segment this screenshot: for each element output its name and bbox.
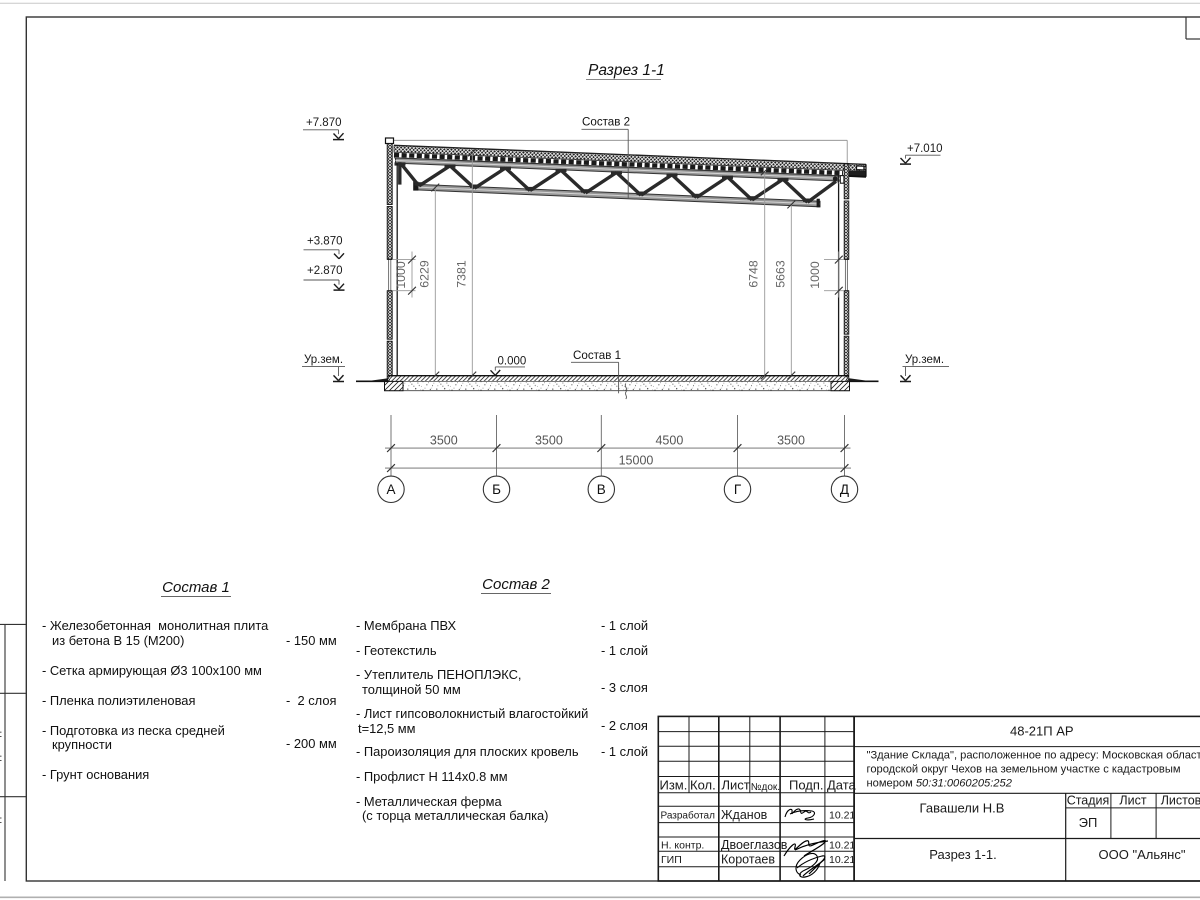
svg-text:Ур.зем.: Ур.зем. (304, 354, 343, 366)
svg-text:номером 50:31:0060205:252: номером 50:31:0060205:252 (867, 777, 1013, 789)
svg-text:1000: 1000 (808, 261, 822, 289)
svg-text:ООО "Альянс": ООО "Альянс" (1099, 847, 1186, 862)
svg-text:1000: 1000 (394, 261, 408, 289)
svg-text:Дата: Дата (827, 778, 857, 793)
svg-text:Лист: Лист (1119, 794, 1146, 808)
svg-text:6748: 6748 (747, 260, 761, 288)
svg-text:Подп. и дата: Подп. и дата (0, 716, 3, 773)
svg-text:Б: Б (492, 482, 501, 497)
svg-text:10.21: 10.21 (829, 839, 855, 851)
svg-text:15000: 15000 (619, 454, 654, 468)
svg-text:7381: 7381 (454, 260, 468, 288)
svg-text:Состав 2: Состав 2 (582, 116, 630, 129)
svg-text:Жданов: Жданов (721, 808, 768, 822)
svg-text:Состав 1: Состав 1 (573, 349, 621, 362)
svg-text:Г: Г (734, 482, 742, 497)
svg-text:А: А (386, 482, 395, 497)
svg-text:+7.010: +7.010 (907, 143, 943, 155)
svg-text:6229: 6229 (417, 260, 431, 288)
svg-text:Коротаев: Коротаев (721, 853, 775, 867)
svg-text:+2.870: +2.870 (307, 265, 343, 277)
svg-text:10.21: 10.21 (829, 810, 855, 822)
svg-text:Гавашели Н.В: Гавашели Н.В (920, 801, 1005, 816)
svg-text:3500: 3500 (535, 434, 563, 448)
svg-text:Листов: Листов (1161, 794, 1200, 808)
svg-text:ЭП: ЭП (1079, 815, 1098, 830)
svg-text:Разрез 1-1: Разрез 1-1 (588, 62, 665, 79)
svg-text:Д: Д (840, 482, 849, 497)
svg-text:3500: 3500 (430, 434, 458, 448)
svg-text:Лист: Лист (722, 778, 750, 793)
svg-text:"Здание Склада", расположенное: "Здание Склада", расположенное по адресу… (867, 750, 1200, 762)
svg-text:Ур.зем.: Ур.зем. (905, 354, 944, 366)
svg-text:10.21: 10.21 (829, 854, 855, 866)
svg-text:+3.870: +3.870 (307, 235, 343, 247)
svg-text:№док.: №док. (751, 782, 780, 793)
svg-text:Стадия: Стадия (1067, 794, 1110, 808)
svg-text:Разработал: Разработал (661, 809, 716, 821)
svg-text:Подп.: Подп. (789, 778, 824, 793)
svg-text:3500: 3500 (777, 434, 805, 448)
svg-text:+7.870: +7.870 (306, 117, 342, 129)
svg-text:4500: 4500 (655, 434, 683, 448)
svg-text:Взам. инв. №: Взам. инв. № (0, 629, 3, 688)
svg-text:Разрез 1-1.: Разрез 1-1. (929, 847, 996, 862)
svg-text:Кол.: Кол. (690, 778, 716, 793)
svg-text:48-21П АР: 48-21П АР (1010, 724, 1074, 739)
svg-text:0.000: 0.000 (498, 356, 527, 368)
svg-text:Двоеглазов: Двоеглазов (721, 838, 788, 852)
svg-text:5663: 5663 (773, 260, 787, 288)
svg-text:ГИП: ГИП (661, 854, 682, 866)
svg-text:Изм.: Изм. (660, 778, 688, 793)
svg-text:городской округ Чехов на земел: городской округ Чехов на земельном участ… (867, 764, 1181, 776)
svg-text:Н. контр.: Н. контр. (661, 839, 704, 851)
svg-text:Инв. № подл.: Инв. № подл. (0, 809, 3, 868)
svg-text:В: В (597, 482, 606, 497)
